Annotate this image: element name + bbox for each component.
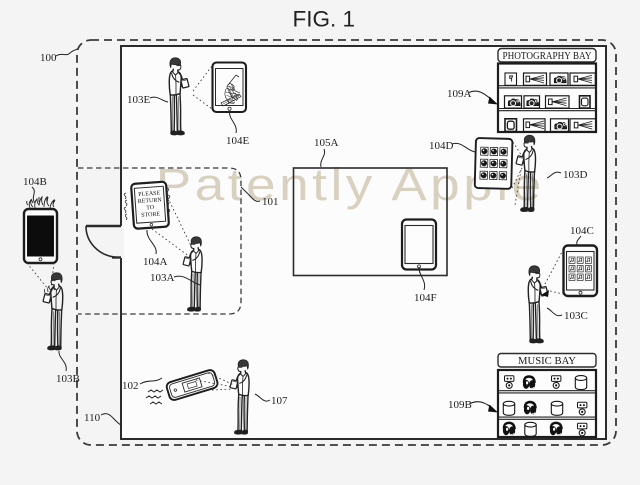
svg-text:104C: 104C [570,225,594,237]
svg-text:103E: 103E [127,94,151,106]
svg-text:PHOTOGRAPHY BAY: PHOTOGRAPHY BAY [503,50,592,62]
svg-text:MUSIC BAY: MUSIC BAY [518,355,576,367]
svg-text:103D: 103D [563,169,588,181]
svg-text:101: 101 [262,196,279,208]
svg-text:103B: 103B [56,373,80,385]
svg-text:107: 107 [271,395,288,407]
svg-text:109A: 109A [447,88,472,100]
svg-text:102: 102 [122,380,139,392]
svg-text:104A: 104A [143,256,168,268]
svg-text:FIG. 1: FIG. 1 [293,7,356,32]
svg-text:104E: 104E [226,135,250,147]
svg-text:100: 100 [40,52,57,64]
svg-text:103C: 103C [564,310,588,322]
svg-text:103A: 103A [150,272,175,284]
svg-text:104D: 104D [429,140,454,152]
svg-text:110: 110 [84,412,101,424]
svg-text:105A: 105A [314,137,339,149]
svg-text:104B: 104B [23,176,47,188]
svg-text:TO: TO [146,205,155,212]
svg-text:109B: 109B [448,399,472,411]
svg-text:104F: 104F [414,292,437,304]
